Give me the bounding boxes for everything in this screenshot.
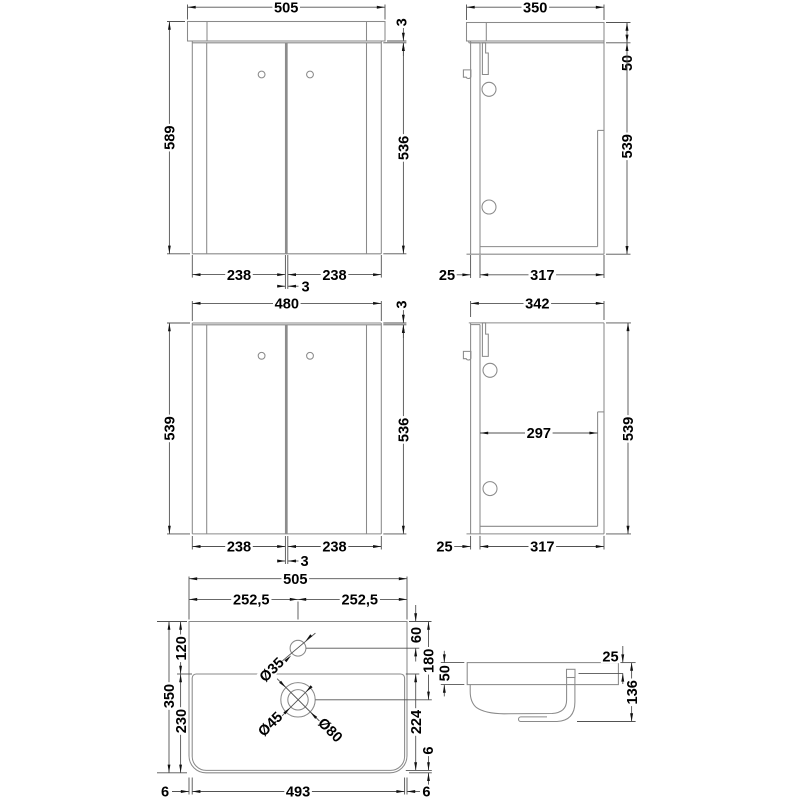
svg-text:60: 60 <box>409 627 425 643</box>
svg-text:6: 6 <box>421 746 437 754</box>
svg-text:3: 3 <box>301 279 309 295</box>
svg-text:3: 3 <box>395 18 411 26</box>
svg-text:317: 317 <box>530 268 554 284</box>
svg-text:224: 224 <box>409 709 425 734</box>
svg-text:238: 238 <box>322 540 346 556</box>
svg-text:505: 505 <box>283 572 307 588</box>
svg-text:342: 342 <box>525 297 549 313</box>
svg-text:238: 238 <box>227 540 251 556</box>
svg-text:480: 480 <box>275 297 299 313</box>
svg-text:25: 25 <box>602 650 618 666</box>
svg-text:539: 539 <box>163 416 179 440</box>
svg-text:230: 230 <box>174 709 190 733</box>
svg-text:350: 350 <box>162 684 178 708</box>
svg-text:350: 350 <box>523 0 547 16</box>
svg-text:297: 297 <box>527 426 551 442</box>
svg-text:505: 505 <box>274 0 298 16</box>
svg-text:539: 539 <box>621 417 637 441</box>
svg-text:120: 120 <box>174 636 190 660</box>
svg-text:589: 589 <box>163 125 179 149</box>
svg-text:252,5: 252,5 <box>233 593 270 609</box>
svg-text:180: 180 <box>422 649 438 673</box>
svg-text:252,5: 252,5 <box>342 593 379 609</box>
svg-text:50: 50 <box>438 665 454 681</box>
svg-text:536: 536 <box>397 136 413 160</box>
svg-text:317: 317 <box>530 540 554 556</box>
svg-text:3: 3 <box>300 554 308 570</box>
svg-text:50: 50 <box>620 55 636 71</box>
svg-text:539: 539 <box>620 134 636 158</box>
svg-text:136: 136 <box>625 680 641 704</box>
svg-text:536: 536 <box>397 418 413 442</box>
svg-text:25: 25 <box>439 268 455 284</box>
svg-text:25: 25 <box>436 540 452 556</box>
svg-text:238: 238 <box>227 268 251 284</box>
svg-text:6: 6 <box>161 785 169 800</box>
svg-text:238: 238 <box>322 268 346 284</box>
svg-text:6: 6 <box>422 785 430 800</box>
svg-text:493: 493 <box>286 785 310 800</box>
svg-text:3: 3 <box>395 300 411 308</box>
